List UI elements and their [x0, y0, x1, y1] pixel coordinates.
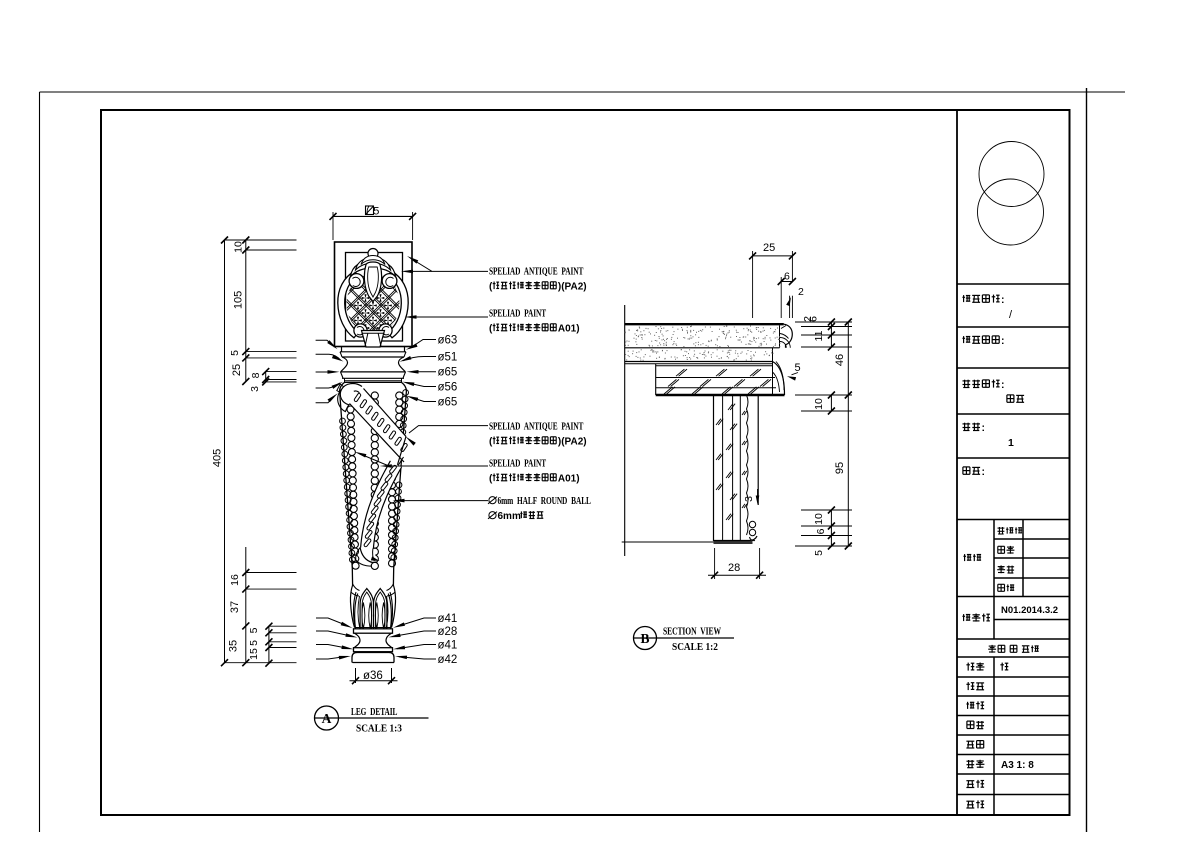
- svg-text:405: 405: [212, 449, 224, 467]
- svg-text:6mm: 6mm: [498, 511, 521, 522]
- svg-text:ø56: ø56: [438, 382, 458, 394]
- svg-text:25: 25: [763, 242, 775, 254]
- svg-text:SCALE 1:3: SCALE 1:3: [356, 723, 402, 735]
- svg-text:105: 105: [233, 291, 245, 309]
- svg-text:SPELIAD PAINT: SPELIAD PAINT: [489, 307, 546, 319]
- svg-text:2: 2: [798, 286, 804, 298]
- svg-text:5: 5: [248, 640, 260, 646]
- svg-text:ø41: ø41: [438, 613, 458, 625]
- svg-text:11: 11: [813, 330, 825, 341]
- svg-text:SPELIAD ANTIQUE PAINT: SPELIAD ANTIQUE PAINT: [489, 420, 583, 432]
- svg-text:SCALE 1:2: SCALE 1:2: [672, 641, 718, 653]
- svg-text:10: 10: [813, 398, 825, 410]
- svg-text:15: 15: [248, 648, 260, 660]
- svg-text::: :: [1001, 379, 1005, 391]
- svg-text:)(PA2): )(PA2): [558, 282, 587, 293]
- svg-text:A3 1: 8: A3 1: 8: [1001, 760, 1034, 771]
- svg-text:35: 35: [228, 640, 240, 652]
- svg-text:ø51: ø51: [438, 352, 458, 364]
- svg-text:10: 10: [813, 513, 825, 525]
- svg-text:8: 8: [250, 372, 262, 378]
- svg-text:3: 3: [743, 496, 755, 502]
- svg-text:37: 37: [229, 601, 241, 613]
- svg-text:1: 1: [1008, 437, 1014, 449]
- svg-text:6mm HALF ROUND BALL: 6mm HALF ROUND BALL: [498, 495, 591, 507]
- svg-text:ø36: ø36: [363, 670, 383, 682]
- svg-text:ø41: ø41: [438, 640, 458, 652]
- svg-text:A01): A01): [558, 474, 580, 485]
- svg-text::: :: [982, 466, 986, 478]
- svg-text:ø65: ø65: [438, 397, 458, 409]
- svg-text:25: 25: [231, 364, 243, 376]
- svg-text:6: 6: [808, 316, 820, 322]
- svg-text:ø63: ø63: [438, 335, 458, 347]
- svg-text:SPELIAD ANTIQUE PAINT: SPELIAD ANTIQUE PAINT: [489, 265, 583, 277]
- svg-text:5: 5: [813, 550, 825, 556]
- svg-text:95: 95: [834, 462, 846, 474]
- svg-text:28: 28: [728, 562, 740, 574]
- svg-text:6: 6: [784, 271, 790, 283]
- svg-text::: :: [1001, 294, 1005, 306]
- svg-text:)(PA2): )(PA2): [558, 437, 587, 448]
- svg-text:6: 6: [815, 528, 827, 534]
- svg-text:SECTION VIEW: SECTION VIEW: [663, 625, 721, 636]
- svg-text:16: 16: [229, 574, 241, 586]
- svg-text::: :: [982, 422, 986, 434]
- svg-text:LEG DETAIL: LEG DETAIL: [351, 706, 397, 718]
- svg-text:5: 5: [373, 205, 379, 217]
- svg-text:ø42: ø42: [438, 654, 458, 666]
- svg-text:N01.2014.3.2: N01.2014.3.2: [1001, 605, 1058, 616]
- svg-text:ø28: ø28: [438, 626, 458, 638]
- svg-text:46: 46: [834, 354, 846, 366]
- svg-text:5: 5: [229, 350, 241, 356]
- svg-text::: :: [1001, 335, 1005, 347]
- svg-text:3: 3: [249, 386, 261, 392]
- svg-text:10: 10: [233, 241, 245, 253]
- svg-text:ø65: ø65: [438, 367, 458, 379]
- svg-text:SPELIAD PAINT: SPELIAD PAINT: [489, 457, 546, 469]
- svg-text:5: 5: [248, 627, 260, 633]
- svg-text:A01): A01): [558, 324, 580, 335]
